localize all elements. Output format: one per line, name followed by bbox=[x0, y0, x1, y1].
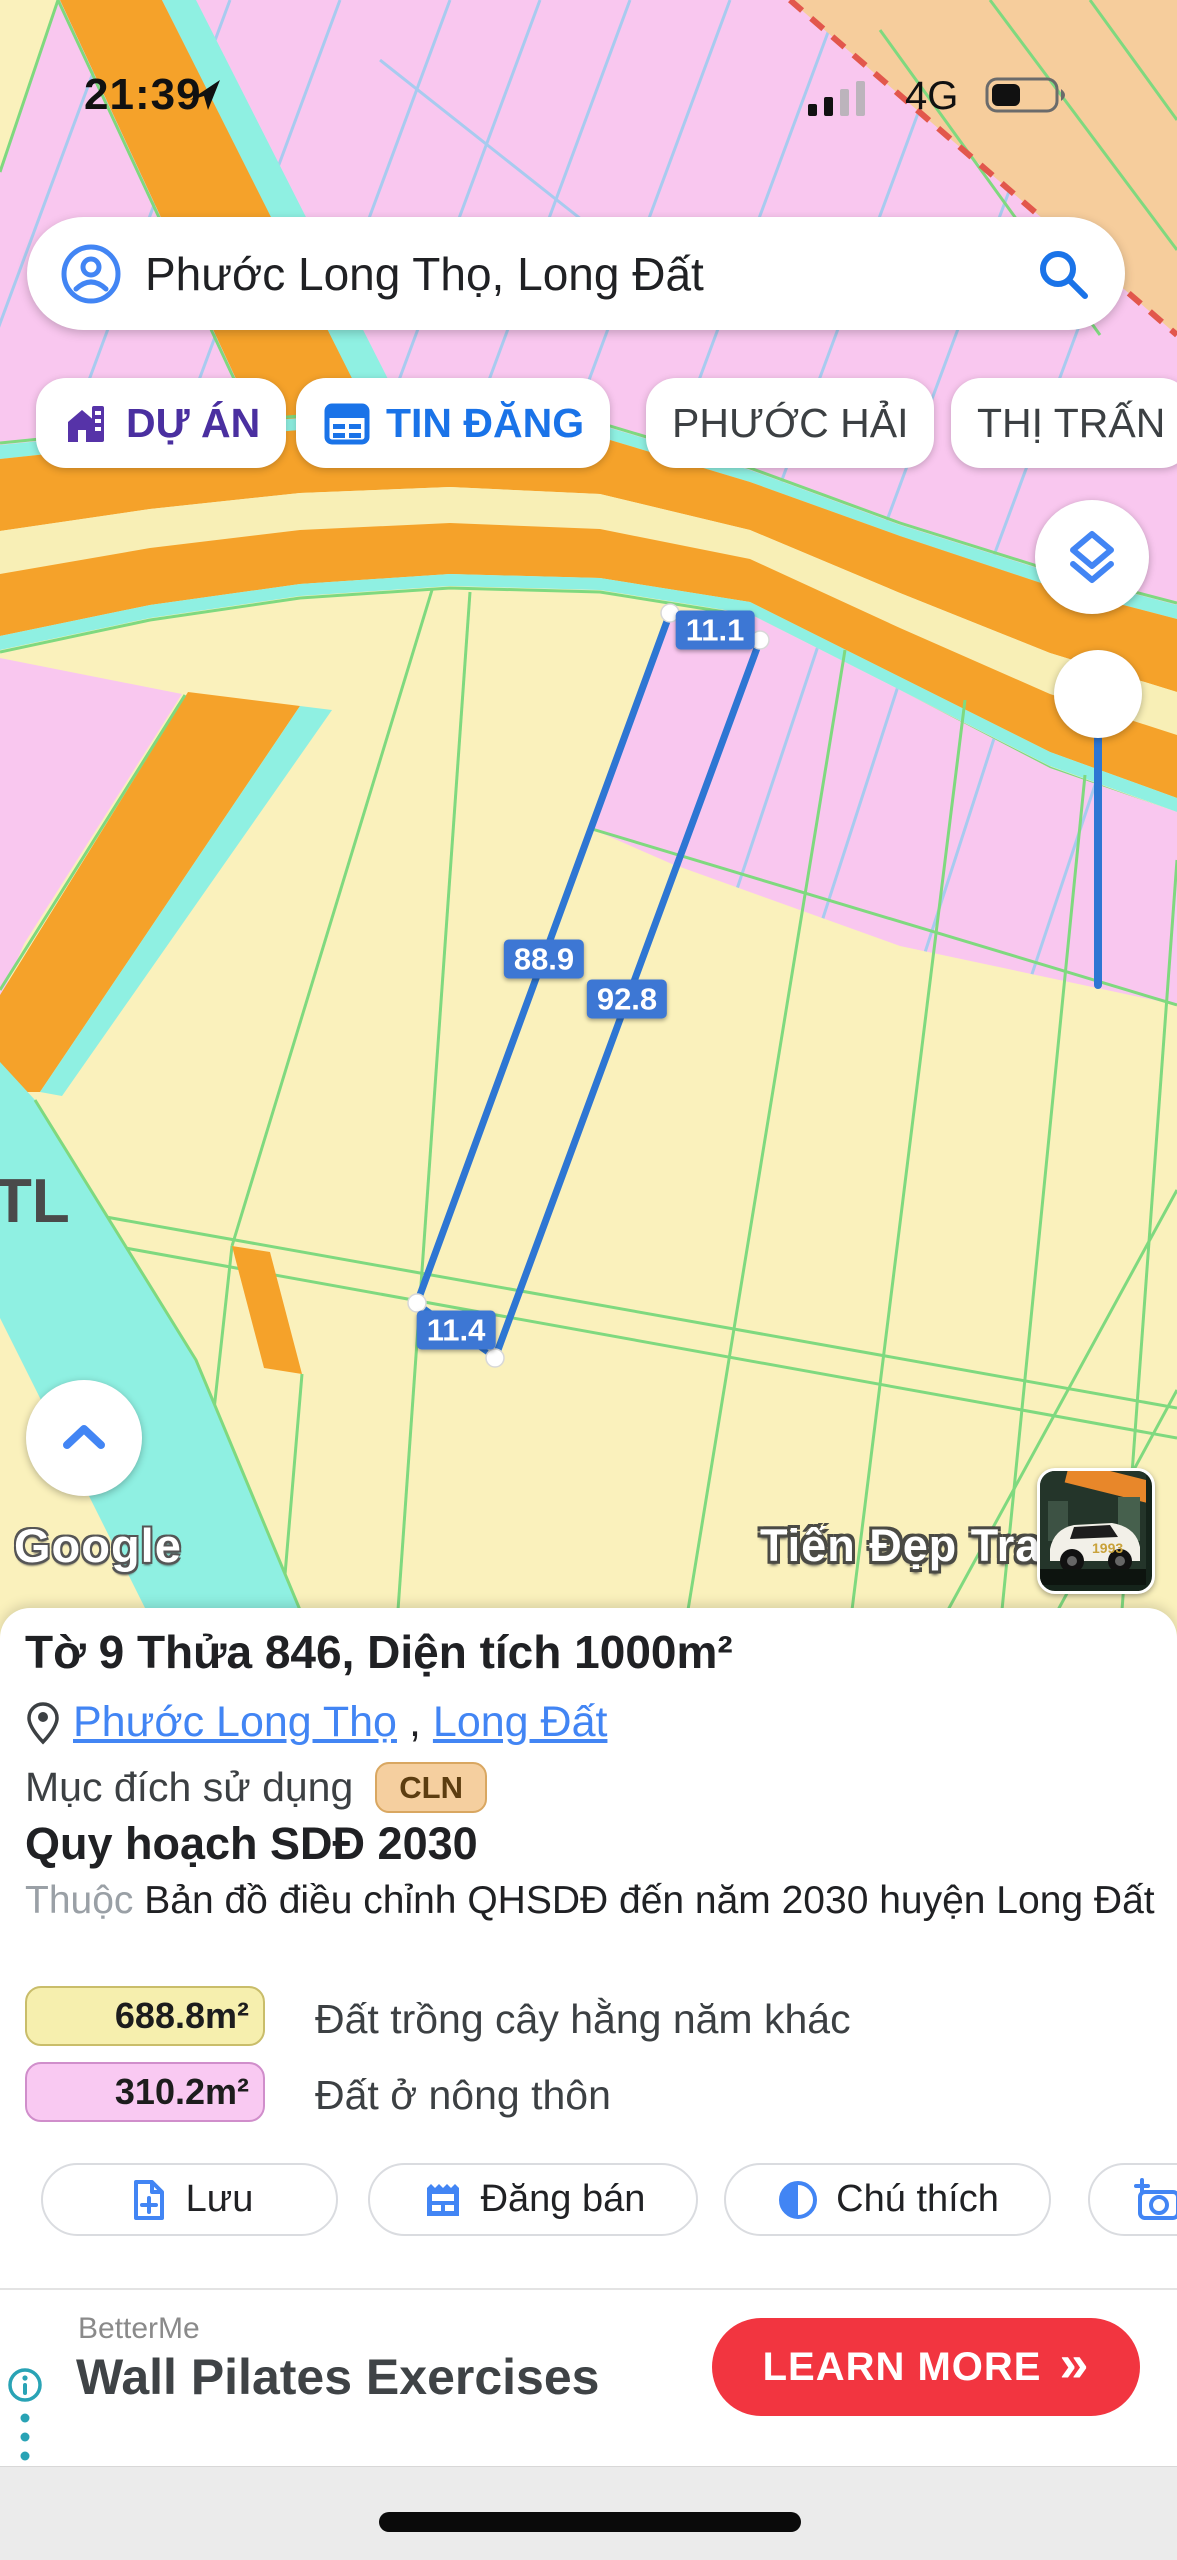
chevron-up-icon bbox=[55, 1409, 113, 1467]
road-name-label: TL bbox=[0, 1167, 70, 1236]
post-listing-label: Đăng bán bbox=[481, 2178, 646, 2221]
chip-phuoc-hai[interactable]: PHƯỚC HẢI bbox=[646, 378, 934, 468]
ad-cta-label: LEARN MORE bbox=[763, 2345, 1042, 2390]
location-link-ward[interactable]: Phước Long Thọ bbox=[73, 1698, 397, 1747]
layers-button[interactable] bbox=[1035, 500, 1149, 614]
map-watermark: Tiến Đẹp Trai bbox=[760, 1520, 1055, 1572]
legend-area: 688.8m² bbox=[115, 1995, 249, 2037]
account-icon[interactable] bbox=[59, 242, 123, 306]
search-input[interactable]: Phước Long Thọ, Long Đất bbox=[145, 247, 1035, 301]
layers-icon bbox=[1061, 526, 1123, 588]
land-purpose-row: Mục đích sử dụng CLN bbox=[25, 1762, 487, 1813]
car-photo-thumbnail[interactable]: 1993 bbox=[1037, 1468, 1155, 1594]
app-screen: TL 11.1 88.9 92.8 11.4 21:39 4G bbox=[0, 0, 1177, 2560]
search-icon[interactable] bbox=[1035, 246, 1091, 302]
google-logo: Google bbox=[14, 1518, 182, 1573]
chip-tin-dang[interactable]: TIN ĐĂNG bbox=[296, 378, 610, 468]
signal-icon bbox=[806, 78, 896, 118]
car-plate-label: 1993 bbox=[1092, 1540, 1123, 1556]
chip-label: THỊ TRẤN bbox=[977, 400, 1165, 447]
camera-plus-icon bbox=[1134, 2176, 1177, 2224]
ad-cta-button[interactable]: LEARN MORE » bbox=[712, 2318, 1140, 2416]
purpose-label: Mục đích sử dụng bbox=[25, 1764, 353, 1811]
map-pin-icon bbox=[25, 1700, 61, 1746]
listing-board-icon bbox=[421, 2178, 465, 2222]
save-button[interactable]: Lưu bbox=[41, 2163, 338, 2236]
legend-label-cropland: Đất trồng cây hằng năm khác bbox=[315, 1996, 851, 2043]
location-separator: , bbox=[409, 1698, 421, 1747]
belongs-label: Thuộc bbox=[25, 1879, 133, 1922]
belongs-text: Bản đồ điều chỉnh QHSDĐ đến năm 2030 huy… bbox=[144, 1879, 1154, 1922]
plan-source: Thuộc Bản đồ điều chỉnh QHSDĐ đến năm 20… bbox=[25, 1876, 1155, 1926]
legend-swatch-cropland: 688.8m² bbox=[25, 1986, 265, 2046]
post-listing-button[interactable]: Đăng bán bbox=[368, 2163, 698, 2236]
home-indicator[interactable] bbox=[379, 2512, 801, 2532]
plan-title: Quy hoạch SDĐ 2030 bbox=[25, 1818, 478, 1870]
search-bar[interactable]: Phước Long Thọ, Long Đất bbox=[27, 217, 1125, 330]
save-file-icon bbox=[126, 2178, 170, 2222]
collapse-panel-button[interactable] bbox=[26, 1380, 142, 1496]
chip-du-an[interactable]: DỰ ÁN bbox=[36, 378, 286, 468]
location-link-district[interactable]: Long Đất bbox=[433, 1698, 608, 1747]
parcel-title: Tờ 9 Thửa 846, Diện tích 1000m² bbox=[25, 1625, 733, 1679]
legend-area: 310.2m² bbox=[115, 2071, 249, 2113]
measurement-badge-left: 88.9 bbox=[504, 940, 584, 979]
measurement-badge-bottom: 11.4 bbox=[417, 1311, 496, 1350]
contrast-icon bbox=[776, 2178, 820, 2222]
project-house-icon bbox=[62, 398, 112, 448]
parcel-location-row: Phước Long Thọ, Long Đất bbox=[25, 1698, 607, 1747]
purpose-code-badge[interactable]: CLN bbox=[375, 1762, 487, 1813]
ad-info-icon[interactable] bbox=[6, 2366, 46, 2476]
network-type: 4G bbox=[905, 74, 958, 119]
camera-button[interactable] bbox=[1088, 2163, 1177, 2236]
measurement-badge-right: 92.8 bbox=[587, 980, 667, 1019]
chip-thi-tran[interactable]: THỊ TRẤN bbox=[951, 378, 1177, 468]
legend-label-residential: Đất ở nông thôn bbox=[315, 2072, 611, 2119]
save-button-label: Lưu bbox=[186, 2178, 254, 2221]
status-time: 21:39 bbox=[84, 70, 202, 120]
ad-brand: BetterMe bbox=[78, 2312, 200, 2346]
battery-icon bbox=[985, 74, 1075, 116]
legend-toggle-label: Chú thích bbox=[836, 2178, 999, 2221]
chip-label: TIN ĐĂNG bbox=[386, 400, 584, 447]
location-arrow-icon bbox=[186, 74, 226, 114]
chip-label: PHƯỚC HẢI bbox=[672, 400, 908, 447]
listing-calendar-icon bbox=[322, 398, 372, 448]
ad-headline: Wall Pilates Exercises bbox=[76, 2348, 599, 2406]
double-chevron-icon: » bbox=[1059, 2338, 1089, 2390]
legend-swatch-residential: 310.2m² bbox=[25, 2062, 265, 2122]
slider-handle[interactable] bbox=[1054, 650, 1142, 738]
measurement-badge-top: 11.1 bbox=[676, 611, 755, 650]
chip-label: DỰ ÁN bbox=[126, 400, 260, 447]
legend-toggle-button[interactable]: Chú thích bbox=[724, 2163, 1051, 2236]
